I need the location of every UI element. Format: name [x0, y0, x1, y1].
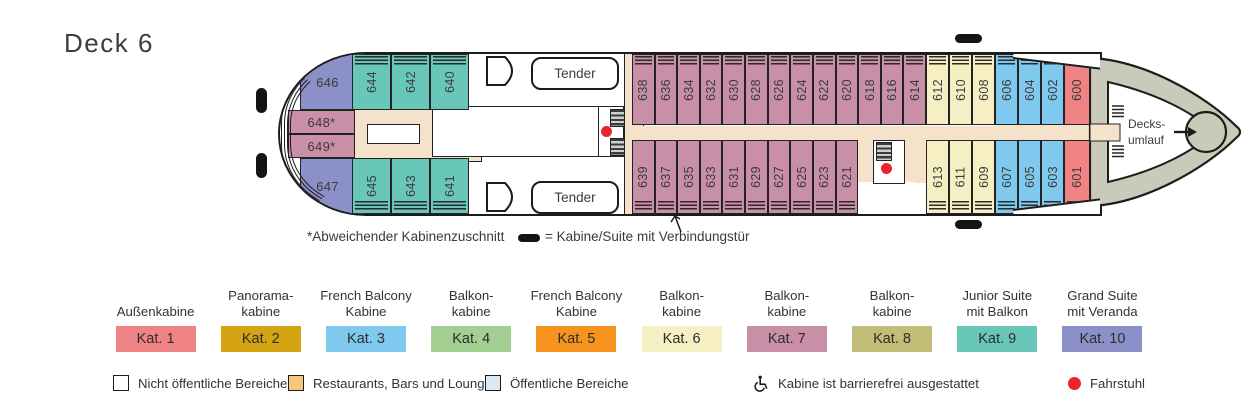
category-badge: Kat. 2 [221, 326, 301, 352]
area-legend-label: Nicht öffentliche Bereiche [138, 376, 287, 391]
cabin-643: 643 [391, 158, 430, 214]
cabin-622: 622 [813, 54, 836, 125]
area-legend-item: Fahrstuhl [1068, 372, 1145, 394]
cabin-641: 641 [430, 158, 469, 214]
cabin-616: 616 [881, 54, 904, 125]
connecting-door-marker [256, 153, 267, 178]
category-label: French BalconyKabine [320, 283, 412, 319]
non-public-swatch [113, 375, 129, 391]
cabin-618: 618 [858, 54, 881, 125]
cabin-646: 646 [300, 54, 355, 110]
cabin-number: 634 [682, 79, 696, 101]
category-label-line: kabine [662, 304, 701, 320]
cabin-number: 639 [636, 166, 650, 188]
cabin-604: 604 [1018, 54, 1041, 125]
cabin-637: 637 [655, 140, 678, 214]
category-kat-7: Balkon-kabineKat. 7 [734, 283, 839, 352]
cabin-number: 632 [704, 79, 718, 101]
category-kat-1: AußenkabineKat. 1 [103, 283, 208, 352]
category-badge: Kat. 4 [431, 326, 511, 352]
service-room [367, 124, 420, 144]
cabin-623: 623 [813, 140, 836, 214]
cabin-638: 638 [632, 54, 655, 125]
category-label-line: kabine [767, 304, 806, 320]
category-label-line: mit Veranda [1067, 304, 1137, 320]
cabin-number: 648* [308, 115, 336, 130]
connecting-door-marker [955, 34, 982, 43]
cabin-number: 600 [1070, 79, 1084, 101]
category-label: Junior Suitemit Balkon [962, 283, 1032, 319]
cabin-number: 645 [364, 175, 378, 197]
cabin-number: 625 [795, 166, 809, 188]
ship-hull: Tender Tender 646648*649*647644642640638… [278, 52, 1102, 216]
cabin-number: 647 [316, 179, 339, 194]
category-kat-9: Junior Suitemit BalkonKat. 9 [945, 283, 1050, 352]
elevator-dot-aft [881, 163, 892, 174]
cabin-636: 636 [655, 54, 678, 125]
cabin-634: 634 [677, 54, 700, 125]
category-label-line: Panorama- [228, 288, 293, 304]
cabin-612: 612 [926, 54, 949, 125]
cabin-624: 624 [790, 54, 813, 125]
cabin-606: 606 [995, 54, 1018, 125]
category-badge: Kat. 8 [852, 326, 932, 352]
category-label-line: French Balcony [531, 288, 623, 304]
cabin-number: 606 [1000, 79, 1014, 101]
stairs-icon [876, 142, 892, 161]
category-badge: Kat. 1 [116, 326, 196, 352]
category-badge: Kat. 7 [747, 326, 827, 352]
category-label: French BalconyKabine [531, 283, 623, 319]
category-label-line: kabine [873, 304, 912, 320]
stairs-icon [610, 138, 625, 156]
category-label-line: kabine [241, 304, 280, 320]
cabin-639: 639 [632, 140, 655, 214]
cabin-number: 638 [636, 79, 650, 101]
area-legend-label: Kabine ist barrierefrei ausgestattet [778, 376, 979, 391]
cabin-number: 618 [862, 79, 876, 101]
lifeboat-shape [484, 55, 522, 87]
cabin-605: 605 [1018, 140, 1041, 214]
cabin-number: 605 [1023, 166, 1037, 188]
cabin-632: 632 [700, 54, 723, 125]
cabin-607: 607 [995, 140, 1018, 214]
cabin-647: 647 [300, 158, 355, 214]
category-label-line: Junior Suite [962, 288, 1032, 304]
category-label-line: Kabine [345, 304, 386, 320]
cabin-number: 608 [977, 79, 991, 101]
cabin-610: 610 [949, 54, 972, 125]
cabin-number: 624 [795, 79, 809, 101]
tender-label: Tender [554, 66, 595, 81]
stern-label-line1: Decks- [1128, 117, 1165, 131]
cabin-number: 610 [954, 79, 968, 101]
category-label: Balkon-kabine [659, 283, 704, 319]
stern-label-line2: umlauf [1128, 133, 1165, 147]
cabin-649: 649* [288, 134, 355, 158]
cabin-number: 607 [1000, 166, 1014, 188]
cabin-number: 621 [840, 166, 854, 188]
cabin-number: 631 [727, 166, 741, 188]
cabin-number: 620 [840, 79, 854, 101]
central-room [432, 106, 600, 157]
cabin-number: 604 [1023, 79, 1037, 101]
mouse-cursor-icon [670, 213, 686, 233]
cabin-number: 614 [908, 79, 922, 101]
category-kat-4: Balkon-kabineKat. 4 [419, 283, 524, 352]
cabin-635: 635 [677, 140, 700, 214]
cabin-number: 640 [442, 71, 456, 93]
cabin-number: 613 [931, 166, 945, 188]
connecting-door-marker [256, 88, 267, 113]
cabin-625: 625 [790, 140, 813, 214]
area-swatch [485, 375, 501, 391]
deck-title: Deck 6 [64, 28, 154, 59]
cabin-627: 627 [768, 140, 791, 214]
cabin-608: 608 [972, 54, 995, 125]
deck-plan-canvas: Deck 6 Te [0, 0, 1256, 410]
area-legend-item: Nicht öffentliche Bereiche [113, 372, 287, 394]
category-label-line: Außenkabine [117, 304, 195, 320]
cabin-number: 616 [885, 79, 899, 101]
cabin-number: 609 [977, 166, 991, 188]
category-badge: Kat. 5 [536, 326, 616, 352]
cabin-629: 629 [745, 140, 768, 214]
area-legend-item: Öffentliche Bereiche [485, 372, 629, 394]
category-label: Panorama-kabine [228, 283, 293, 319]
cabin-number: 642 [403, 71, 417, 93]
tender-area-top: Tender [531, 57, 619, 90]
category-label-line: mit Balkon [966, 304, 1028, 320]
cabin-number: 628 [749, 79, 763, 101]
category-kat-2: Panorama-kabineKat. 2 [208, 283, 313, 352]
lifeboat-shape [484, 181, 522, 213]
category-label-line: Balkon- [449, 288, 494, 304]
category-label: Balkon-kabine [764, 283, 809, 319]
category-badge: Kat. 6 [642, 326, 722, 352]
category-label-line: French Balcony [320, 288, 412, 304]
category-kat-5: French BalconyKabineKat. 5 [524, 283, 629, 352]
category-label-line: kabine [452, 304, 491, 320]
cabin-number: 623 [817, 166, 831, 188]
cabin-626: 626 [768, 54, 791, 125]
cabin-614: 614 [903, 54, 926, 125]
category-legend: AußenkabineKat. 1Panorama-kabineKat. 2Fr… [103, 283, 1155, 352]
area-legend-label: Fahrstuhl [1090, 376, 1145, 391]
cabin-number: 644 [364, 71, 378, 93]
elevator-dot-mid [601, 126, 612, 137]
category-badge: Kat. 9 [957, 326, 1037, 352]
corridor-connector [915, 143, 926, 183]
connecting-door-marker [955, 220, 982, 229]
cabin-644: 644 [352, 54, 391, 110]
wheelchair-icon [753, 375, 769, 391]
stairs-icon [610, 109, 625, 127]
elevator-legend-dot [1068, 377, 1081, 390]
area-legend-label: Öffentliche Bereiche [510, 376, 629, 391]
cabin-628: 628 [745, 54, 768, 125]
category-kat-3: French BalconyKabineKat. 3 [313, 283, 418, 352]
cabin-621: 621 [836, 140, 859, 214]
category-badge: Kat. 3 [326, 326, 406, 352]
category-label-line: Kabine [556, 304, 597, 320]
cabin-number: 646 [316, 75, 339, 90]
category-label-line: Balkon- [764, 288, 809, 304]
corridor-stub [1090, 124, 1120, 141]
cabin-number: 603 [1046, 166, 1060, 188]
stern-decksumlauf: Decks- umlauf [1078, 40, 1256, 226]
connecting-door-note: = Kabine/Suite mit Verbindungstür [545, 229, 750, 244]
connecting-door-legend-icon [518, 234, 540, 242]
cabin-number: 649* [308, 139, 336, 154]
cabin-number: 636 [659, 79, 673, 101]
cabin-613: 613 [926, 140, 949, 214]
area-legend-label: Restaurants, Bars und Lounges [313, 376, 498, 391]
cabin-number: 635 [682, 166, 696, 188]
category-badge: Kat. 10 [1062, 326, 1142, 352]
cabin-number: 626 [772, 79, 786, 101]
area-swatch [288, 375, 304, 391]
tender-area-bottom: Tender [531, 181, 619, 214]
category-kat-8: Balkon-kabineKat. 8 [839, 283, 944, 352]
cabin-number: 612 [931, 79, 945, 101]
cabin-611: 611 [949, 140, 972, 214]
cabin-number: 641 [442, 175, 456, 197]
cabin-645: 645 [352, 158, 391, 214]
cabin-number: 602 [1046, 79, 1060, 101]
area-legend-item: Kabine ist barrierefrei ausgestattet [753, 372, 979, 394]
cabin-620: 620 [836, 54, 859, 125]
cabin-number: 611 [953, 167, 967, 188]
cabin-number: 601 [1070, 166, 1084, 188]
cabin-609: 609 [972, 140, 995, 214]
cabin-633: 633 [700, 140, 723, 214]
cabin-630: 630 [722, 54, 745, 125]
area-legend-item: Restaurants, Bars und Lounges [288, 372, 498, 394]
category-label: Balkon-kabine [449, 283, 494, 319]
category-label-line: Balkon- [659, 288, 704, 304]
category-kat-10: Grand Suitemit VerandaKat. 10 [1050, 283, 1155, 352]
category-label-line: Balkon- [870, 288, 915, 304]
tender-label: Tender [554, 190, 595, 205]
category-label-line: Grand Suite [1067, 288, 1137, 304]
cabin-number: 633 [704, 166, 718, 188]
cabin-number: 622 [817, 79, 831, 101]
category-label: Balkon-kabine [870, 283, 915, 319]
asterisk-note: *Abweichender Kabinenzuschnitt [307, 229, 504, 244]
cabin-number: 637 [659, 166, 673, 188]
cabin-number: 629 [749, 166, 763, 188]
cabin-648: 648* [288, 110, 355, 134]
cabin-640: 640 [430, 54, 469, 110]
cabin-number: 643 [403, 175, 417, 197]
cabin-number: 630 [727, 79, 741, 101]
cabin-642: 642 [391, 54, 430, 110]
category-label: Außenkabine [117, 283, 195, 319]
cabin-631: 631 [722, 140, 745, 214]
category-kat-6: Balkon-kabineKat. 6 [629, 283, 734, 352]
category-label: Grand Suitemit Veranda [1067, 283, 1137, 319]
cabin-number: 627 [772, 166, 786, 188]
